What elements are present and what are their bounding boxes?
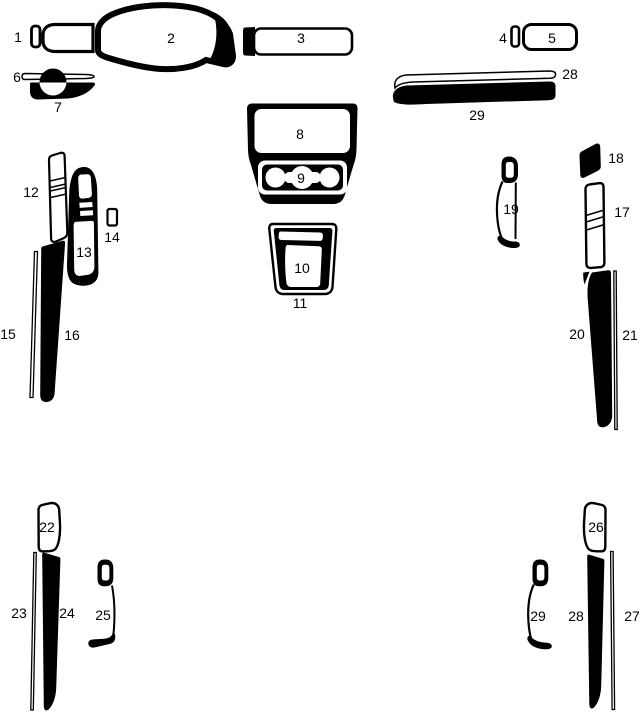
piece-16-shape — [40, 241, 65, 402]
piece-label-21: 21 — [622, 328, 638, 342]
piece-4-shape — [512, 27, 520, 47]
piece-label-13: 13 — [76, 245, 92, 259]
piece-label-3: 3 — [297, 31, 305, 45]
piece-label-20: 20 — [569, 327, 585, 341]
piece-label-27: 27 — [624, 609, 640, 623]
piece-27-shape — [611, 552, 615, 710]
piece-label-6: 6 — [13, 70, 21, 84]
piece-25-shape — [88, 560, 115, 648]
piece-15-shape — [30, 252, 38, 398]
piece-label-12: 12 — [23, 185, 39, 199]
piece-label-2: 2 — [167, 31, 175, 45]
piece-1-shape — [32, 26, 41, 47]
dash-trim-kit-diagram: 1 2 3 4 5 6 7 8 9 10 11 12 13 14 15 16 1… — [0, 0, 644, 716]
piece-10-11-shape — [269, 224, 336, 294]
piece-label-16: 16 — [64, 328, 80, 342]
piece-23-shape — [31, 553, 37, 711]
piece-label-23: 23 — [11, 606, 27, 620]
piece-29-top-shape — [393, 81, 556, 104]
piece-label-29-top: 29 — [469, 108, 485, 122]
piece-13-shape — [67, 167, 98, 286]
piece-21-shape — [614, 271, 617, 430]
piece-24-shape — [42, 552, 60, 710]
piece-label-18: 18 — [608, 151, 624, 165]
piece-2-shape — [43, 5, 234, 69]
piece-label-14: 14 — [104, 230, 120, 244]
piece-label-4: 4 — [499, 31, 507, 45]
piece-29-bottom-shape — [527, 560, 551, 650]
piece-label-1: 1 — [14, 30, 22, 44]
piece-label-15: 15 — [0, 327, 16, 341]
piece-label-11: 11 — [293, 296, 308, 310]
piece-label-10: 10 — [294, 261, 310, 275]
piece-label-8: 8 — [296, 127, 304, 141]
piece-28-bottom-shape — [587, 554, 604, 708]
piece-14-shape — [108, 209, 118, 226]
piece-12-shape — [49, 153, 67, 242]
piece-label-9: 9 — [297, 171, 305, 185]
piece-label-28-bottom: 28 — [568, 609, 584, 623]
piece-label-26: 26 — [588, 520, 604, 534]
piece-label-29-bottom: 29 — [530, 609, 546, 623]
piece-label-19: 19 — [503, 202, 519, 216]
piece-label-17: 17 — [614, 205, 630, 219]
piece-8-9-shape — [247, 104, 358, 205]
piece-18-shape — [579, 143, 600, 177]
piece-label-5: 5 — [548, 31, 556, 45]
piece-label-7: 7 — [54, 100, 62, 114]
piece-label-25: 25 — [95, 608, 111, 622]
piece-label-24: 24 — [59, 606, 75, 620]
piece-20-shape — [583, 270, 612, 427]
piece-label-28-top: 28 — [562, 67, 578, 81]
piece-label-22: 22 — [39, 520, 55, 534]
piece-17-shape — [586, 183, 605, 268]
